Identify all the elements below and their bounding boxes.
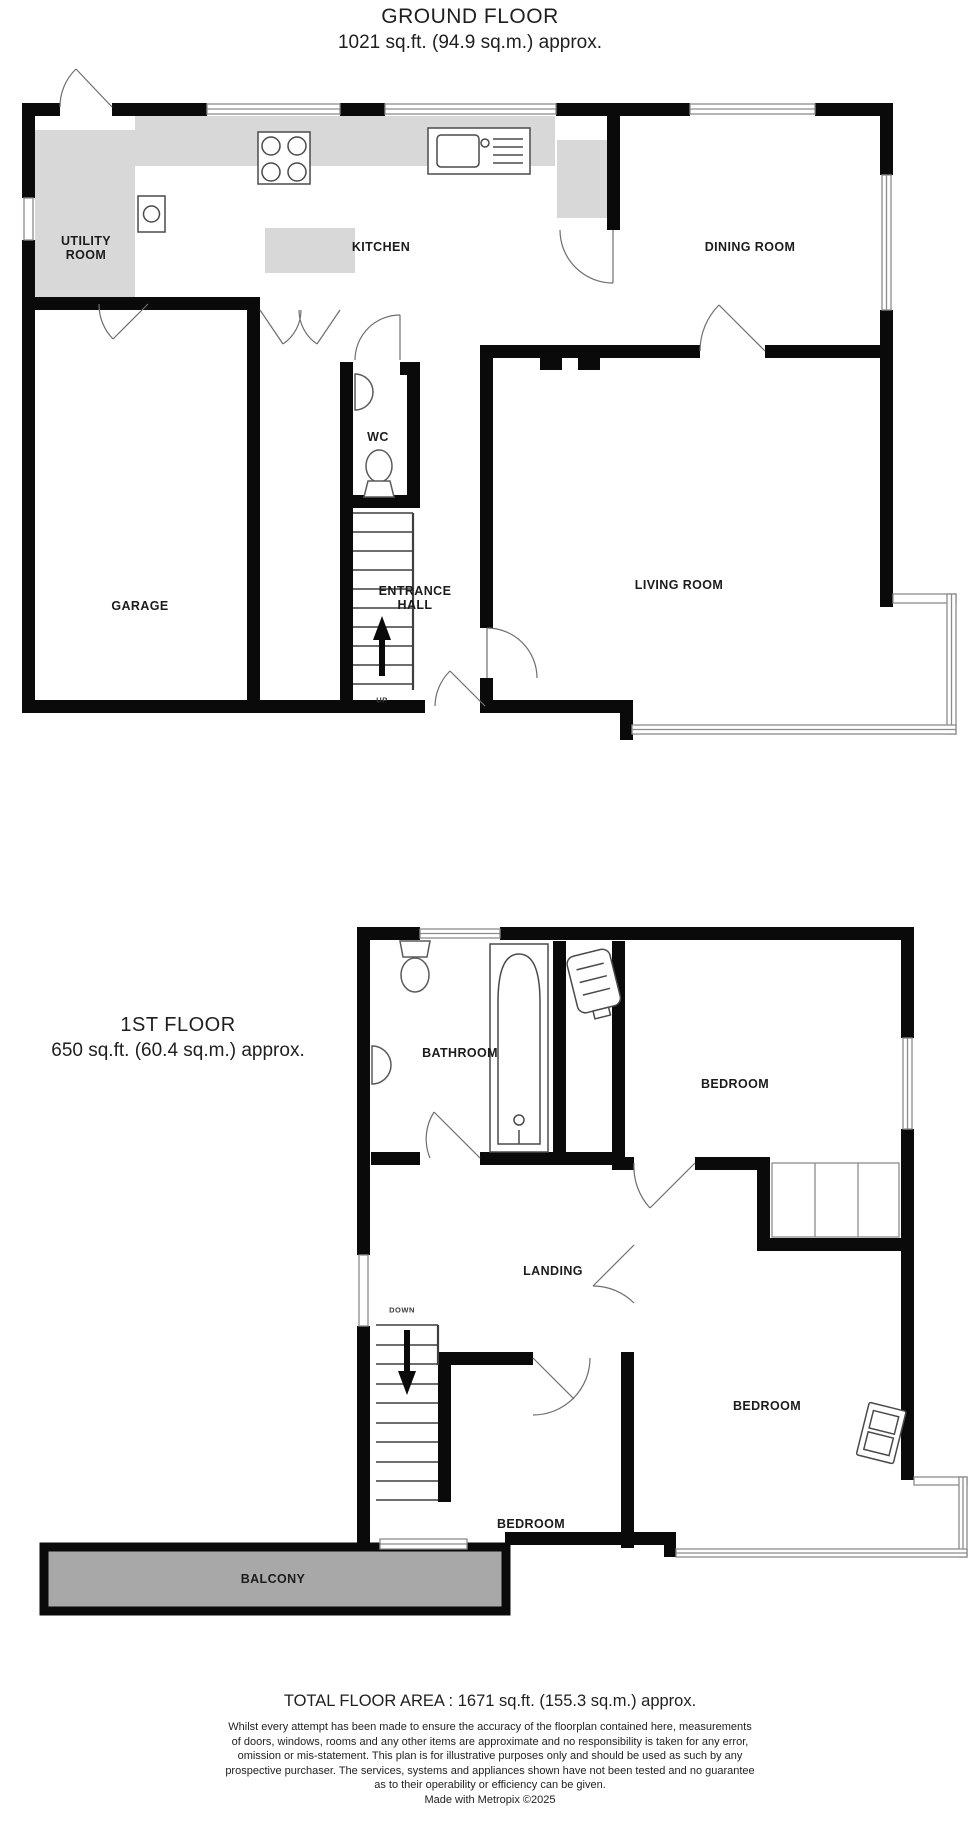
room-label-entrance-hall: ENTRANCE HALL bbox=[379, 584, 452, 612]
hob-icon bbox=[258, 132, 310, 184]
metropix-credit: Made with Metropix ©2025 bbox=[0, 1794, 980, 1806]
down-arrow-icon bbox=[398, 1330, 416, 1395]
room-label-utility: UTILITY ROOM bbox=[61, 234, 111, 262]
first-floor-fixtures bbox=[372, 941, 906, 1464]
room-label-bedroom-top: BEDROOM bbox=[701, 1077, 769, 1091]
bathtub-icon bbox=[490, 944, 548, 1152]
disclaimer-text: Whilst every attempt has been made to en… bbox=[0, 1720, 980, 1793]
footer-block: TOTAL FLOOR AREA : 1671 sq.ft. (155.3 sq… bbox=[0, 1692, 980, 1806]
sink-icon bbox=[428, 128, 530, 174]
room-label-wc: WC bbox=[367, 430, 389, 444]
room-label-living: LIVING ROOM bbox=[635, 578, 723, 592]
stairs-down-label: DOWN bbox=[389, 1306, 415, 1315]
ground-floor-plan bbox=[22, 69, 956, 740]
room-label-balcony: BALCONY bbox=[241, 1572, 306, 1586]
total-floor-area: TOTAL FLOOR AREA : 1671 sq.ft. (155.3 sq… bbox=[0, 1692, 980, 1711]
fitted-wardrobes bbox=[772, 1163, 899, 1237]
wc-basin-icon bbox=[355, 374, 373, 410]
room-label-garage: GARAGE bbox=[111, 599, 168, 613]
ground-floor-title-block: GROUND FLOOR 1021 sq.ft. (94.9 sq.m.) ap… bbox=[160, 5, 780, 54]
room-label-dining: DINING ROOM bbox=[705, 240, 796, 254]
stairs-up-label: UP bbox=[376, 696, 387, 705]
first-floor-walls bbox=[357, 927, 914, 1557]
room-label-bedroom-middle: BEDROOM bbox=[497, 1517, 565, 1531]
washing-machine-icon bbox=[138, 196, 165, 232]
floorplan-drawing bbox=[0, 0, 980, 1826]
ground-floor-title: GROUND FLOOR bbox=[160, 5, 780, 29]
bathroom-basin-icon bbox=[372, 1046, 391, 1084]
room-label-bathroom: BATHROOM bbox=[422, 1046, 498, 1060]
ground-floor-fixtures bbox=[138, 128, 530, 497]
ground-floor-area: 1021 sq.ft. (94.9 sq.m.) approx. bbox=[160, 32, 780, 54]
first-floor-area: 650 sq.ft. (60.4 sq.m.) approx. bbox=[0, 1040, 356, 1062]
room-label-landing: LANDING bbox=[523, 1264, 583, 1278]
wc-toilet-icon bbox=[364, 450, 394, 497]
room-label-bedroom-right: BEDROOM bbox=[733, 1399, 801, 1413]
room-label-kitchen: KITCHEN bbox=[352, 240, 410, 254]
chest-of-drawers-icon bbox=[856, 1402, 906, 1464]
toilet-icon bbox=[400, 941, 430, 992]
floorplan-page: GROUND FLOOR 1021 sq.ft. (94.9 sq.m.) ap… bbox=[0, 0, 980, 1826]
first-floor-title: 1ST FLOOR bbox=[0, 1014, 356, 1037]
first-floor-title-block: 1ST FLOOR 650 sq.ft. (60.4 sq.m.) approx… bbox=[0, 1014, 356, 1062]
